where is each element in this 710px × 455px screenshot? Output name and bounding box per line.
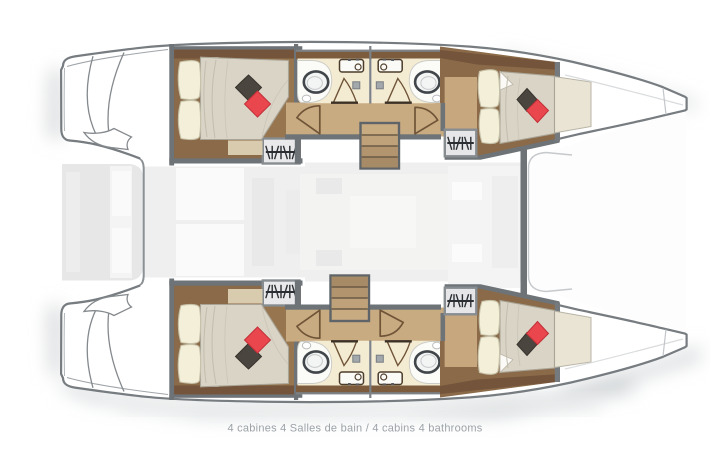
svg-text:4 cabines 4 Salles de bain / 4: 4 cabines 4 Salles de bain / 4 cabins 4 … xyxy=(227,423,482,435)
